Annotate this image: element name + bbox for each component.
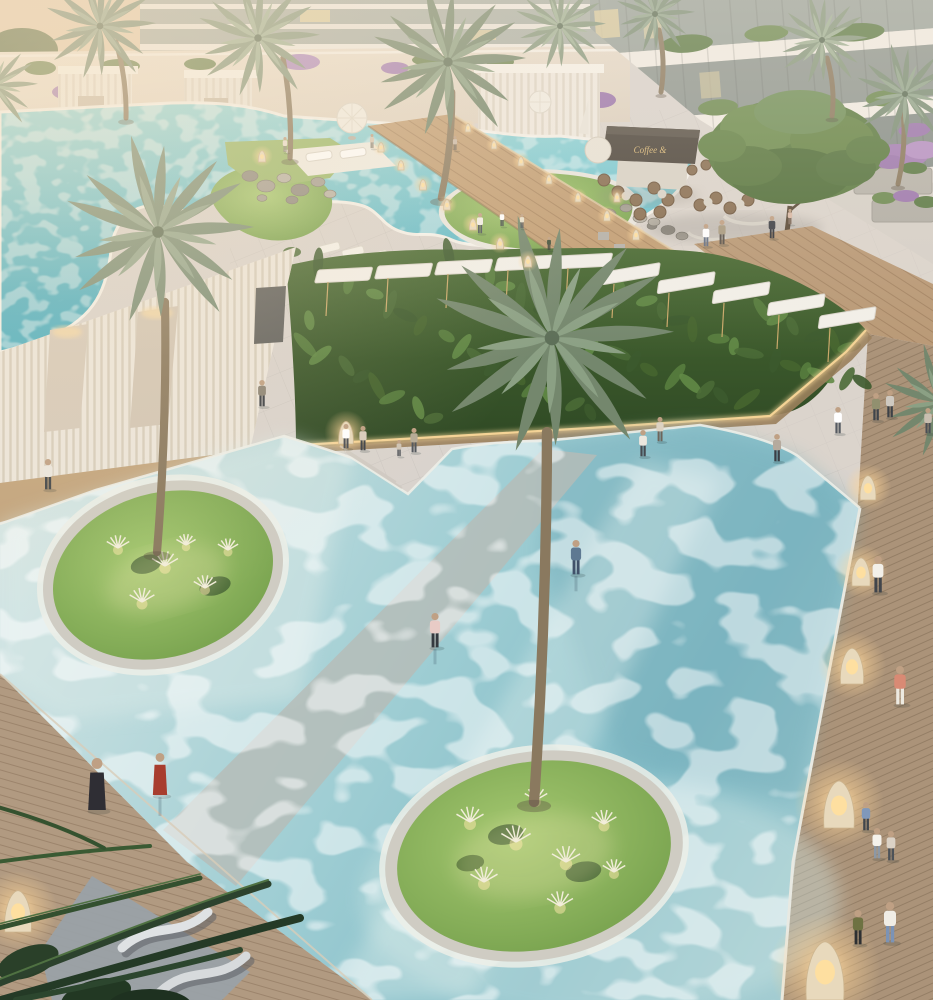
dusk-haze xyxy=(0,0,933,1000)
rendered-scene: Coffee & xyxy=(0,0,933,1000)
scene-canvas: Coffee & xyxy=(0,0,933,1000)
